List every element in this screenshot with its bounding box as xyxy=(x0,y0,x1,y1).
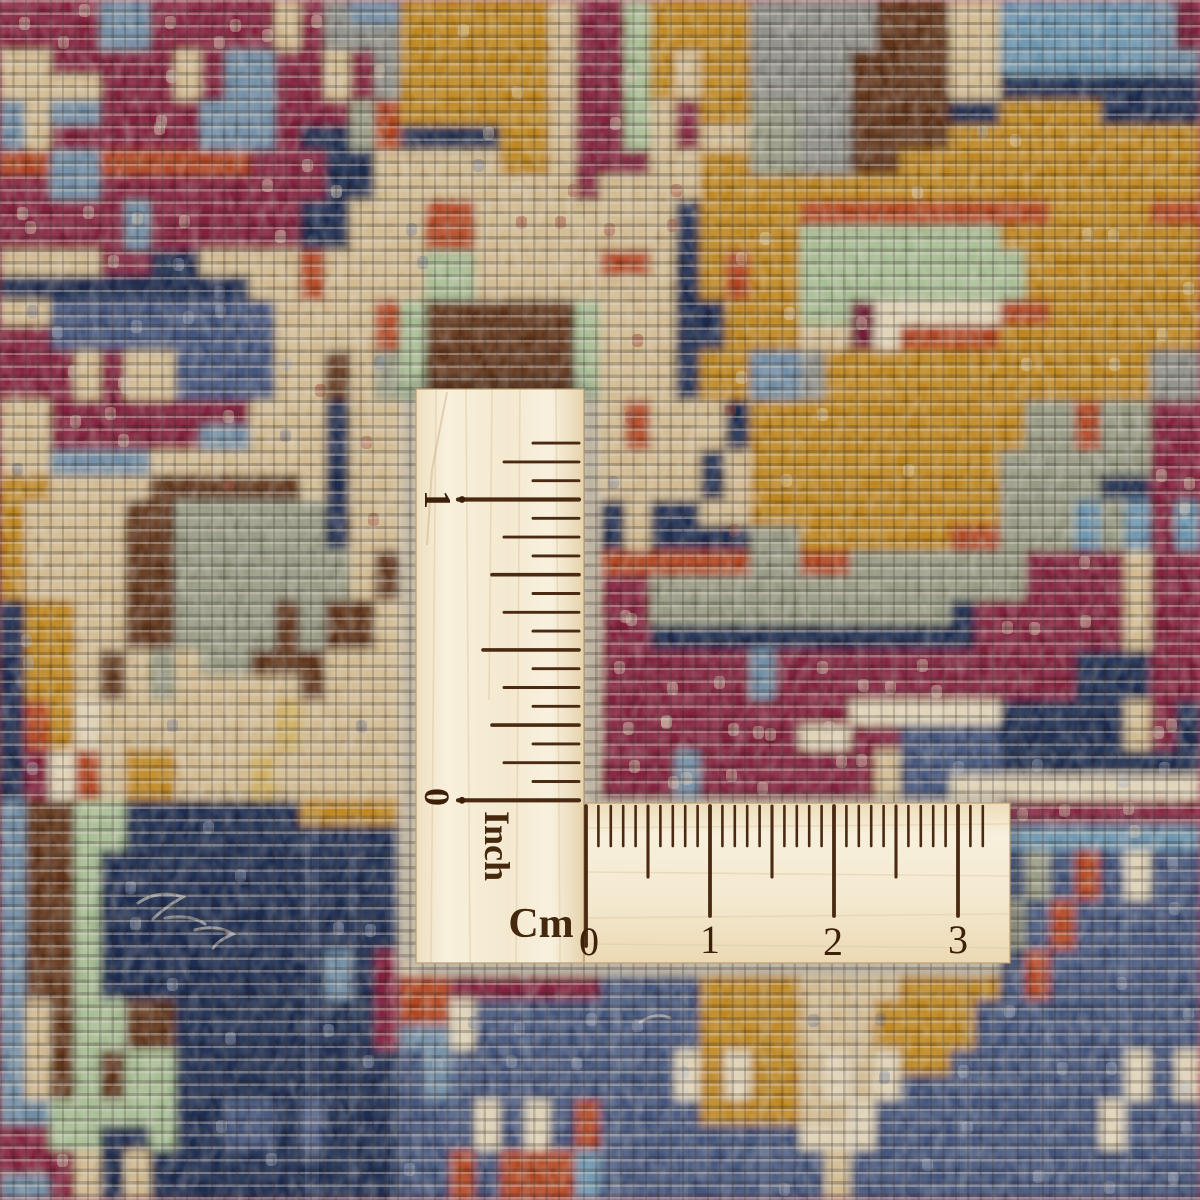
svg-text:0: 0 xyxy=(579,919,599,964)
svg-text:1: 1 xyxy=(416,490,458,509)
svg-text:3: 3 xyxy=(948,917,968,962)
svg-text:0: 0 xyxy=(417,788,457,806)
svg-text:2: 2 xyxy=(823,919,843,964)
svg-text:Cm: Cm xyxy=(508,901,573,947)
svg-text:Inch: Inch xyxy=(477,811,517,881)
svg-text:1: 1 xyxy=(700,917,720,962)
